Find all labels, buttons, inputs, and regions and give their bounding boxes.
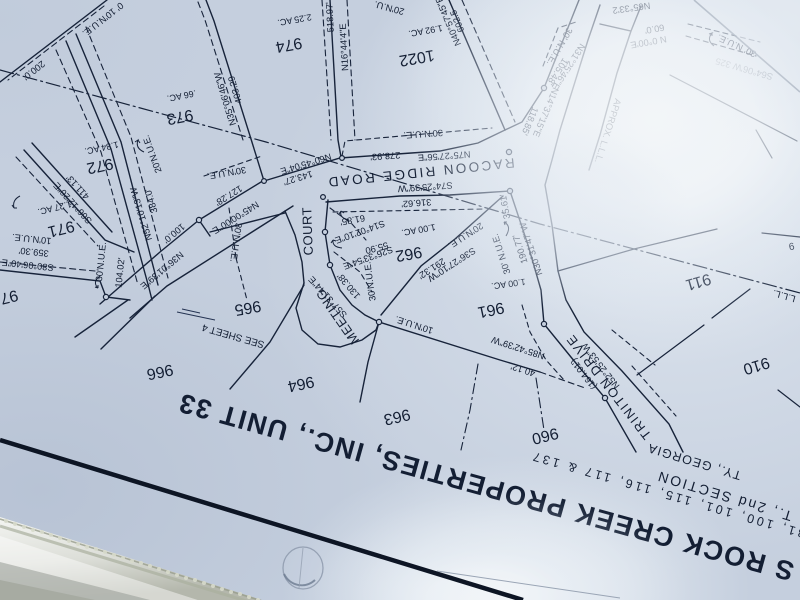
svg-text:518.97': 518.97' [324, 2, 336, 33]
svg-text:278.93': 278.93' [370, 150, 401, 162]
svg-text:COURT: COURT [299, 207, 316, 256]
